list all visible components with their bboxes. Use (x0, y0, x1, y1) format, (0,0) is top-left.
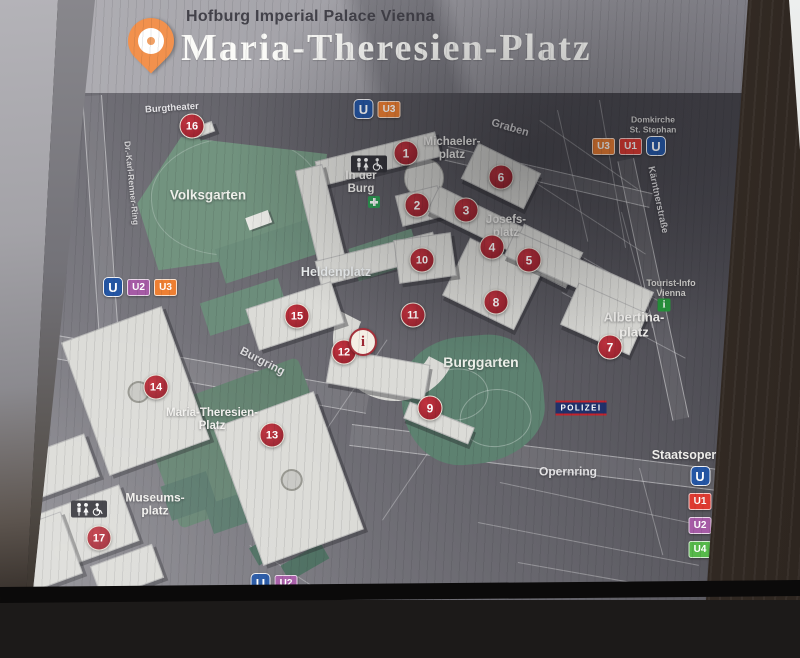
map-marker-8: 8 (484, 290, 509, 315)
map-marker-6: 6 (489, 165, 514, 190)
ubahn-badge-U: U (690, 466, 710, 486)
label-burggarten: Burggarten (443, 355, 518, 371)
map-marker-11: 11 (401, 303, 426, 328)
ubahn-badge-U: U (646, 136, 666, 156)
map-marker-7: 7 (598, 335, 623, 360)
u-top-center: UU3 (354, 99, 401, 119)
map-marker-14: 14 (144, 375, 169, 400)
u-staatsoper-stack: UU1U2U4 (689, 466, 712, 558)
map-marker-5: 5 (517, 248, 542, 273)
map-marker-9: 9 (418, 396, 443, 421)
map-marker-17: 17 (87, 526, 112, 551)
label-volksgarten: Volksgarten (170, 187, 246, 202)
map-marker-15: 15 (285, 304, 310, 329)
u-mid-left: UU2U3 (103, 277, 177, 297)
map-marker-2: 2 (405, 193, 430, 218)
ubahn-badge-U1: U1 (689, 493, 712, 510)
label-heldenplatz: Heldenplatz (301, 265, 371, 279)
label-dr-karl-renner-ring: Dr.-Karl-Renner-Ring (122, 140, 140, 225)
ubahn-badge-U1: U1 (619, 138, 642, 155)
info-marker: i (349, 328, 377, 356)
ubahn-badge-U: U (354, 99, 374, 119)
wc-in-der-burg-icon (351, 156, 387, 173)
label-michaelerplatz: Michaeler-platz (424, 136, 481, 162)
ubahn-badge-U3: U3 (592, 138, 615, 155)
map-marker-16: 16 (180, 114, 205, 139)
tourist-info-icon: i (658, 299, 671, 312)
ubahn-badge-U3: U3 (378, 101, 401, 118)
ubahn-badge-U2: U2 (689, 517, 712, 534)
map-sign-board: Hofburg Imperial Palace Vienna Maria-The… (0, 0, 800, 600)
label-in-der-burg: In derBurg (345, 170, 376, 196)
label-kaerntnerstrasse: Kärntnerstraße (645, 166, 670, 235)
ubahn-badge-U2: U2 (127, 279, 150, 296)
polizei-badge: POLIZEI (556, 401, 607, 416)
label-maria-theresien-platz: Maria-Theresien-Platz (166, 407, 258, 433)
map-marker-4: 4 (480, 235, 505, 260)
label-domkirche-st-stephan: DomkircheSt. Stephan (630, 115, 677, 134)
map-annotations-layer: BurgtheaterVolksgartenMichaeler-platzGra… (0, 0, 800, 600)
label-tourist-info: Tourist-InfoVienna (646, 278, 695, 298)
map-marker-3: 3 (454, 198, 479, 223)
label-staatsoper: Staatsoper (652, 448, 717, 462)
map-marker-13: 13 (260, 423, 285, 448)
label-graben: Graben (490, 117, 530, 139)
label-opernring: Opernring (539, 465, 597, 478)
wc-museumsplatz-icon (71, 501, 107, 518)
ubahn-badge-U4: U4 (689, 541, 712, 558)
first-aid-cross-icon (368, 196, 380, 208)
ubahn-badge-U: U (103, 277, 123, 297)
label-museumsplatz: Museums-platz (125, 492, 184, 519)
u-top-right: U3U1U (592, 136, 666, 156)
map-marker-1: 1 (394, 141, 419, 166)
map-marker-10: 10 (410, 248, 435, 273)
location-pin-icon (128, 18, 174, 64)
label-burgring: Burgring (237, 345, 286, 379)
ubahn-badge-U3: U3 (154, 279, 177, 296)
